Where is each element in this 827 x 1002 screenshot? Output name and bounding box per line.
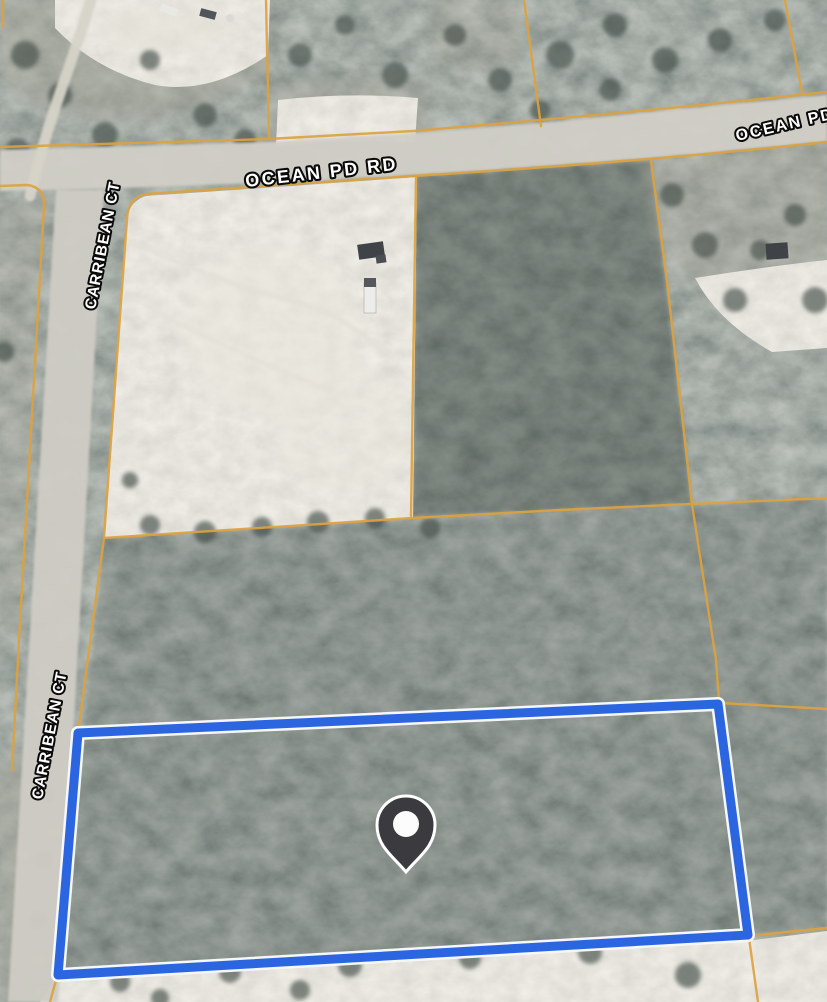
trailer-structure (364, 283, 376, 313)
satellite-map: OCEAN PD RD OCEAN PD CARRIBEAN CT CARRIB… (0, 0, 827, 1002)
pin-dot (393, 811, 419, 837)
satellite-map-viewport[interactable]: OCEAN PD RD OCEAN PD CARRIBEAN CT CARRIB… (0, 0, 827, 1002)
